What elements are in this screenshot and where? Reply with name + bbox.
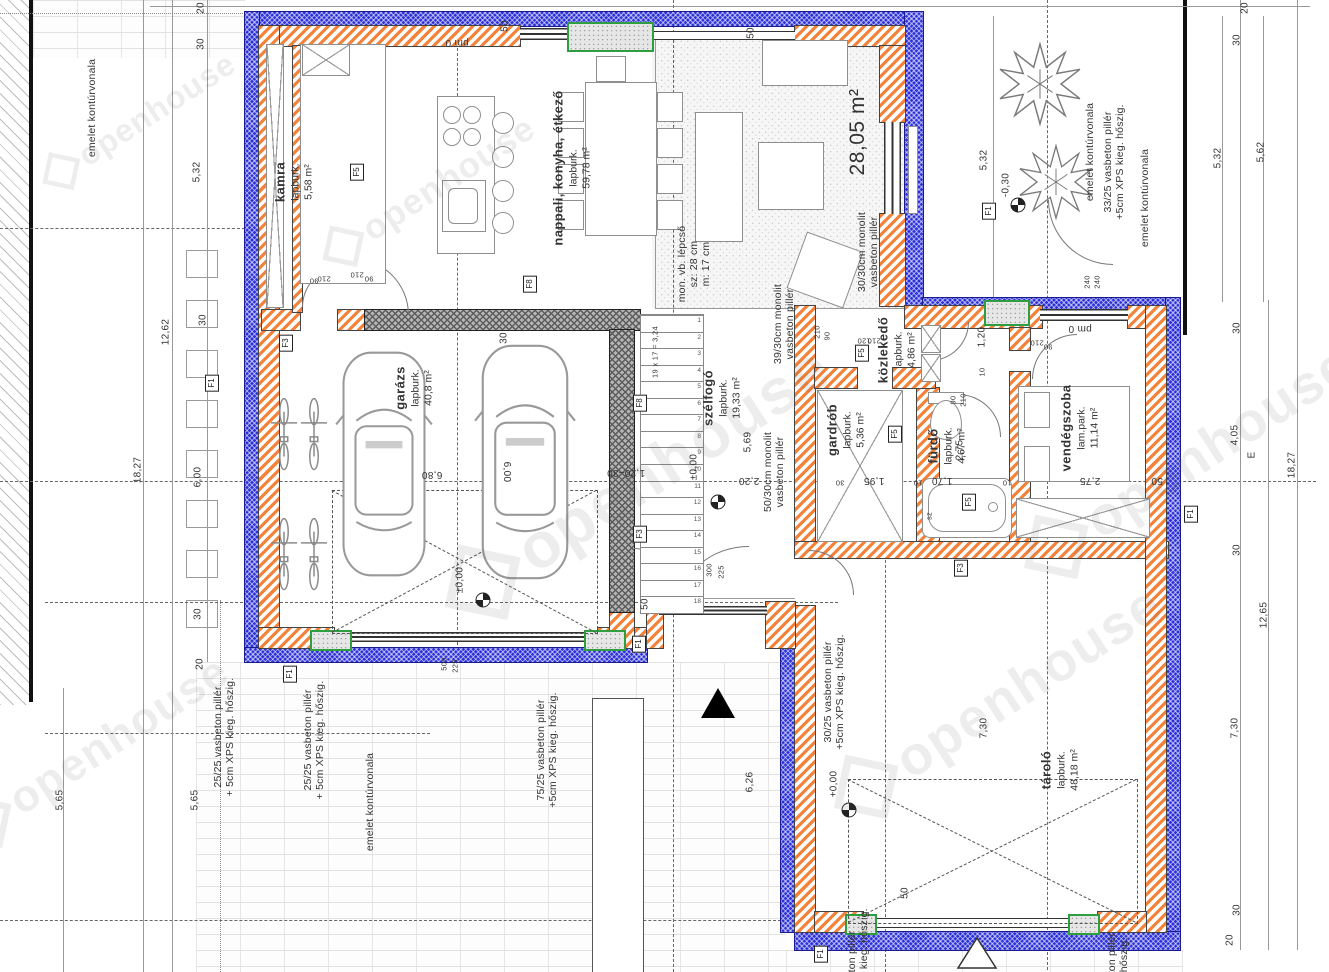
annotation-line: emelet kontúrvonala	[1139, 149, 1151, 247]
dimension-label: 90	[824, 332, 833, 341]
dining-chair	[657, 164, 683, 194]
stair-tread: 9	[641, 447, 703, 448]
dotted-line	[0, 13, 245, 14]
annotation: 25/25 vasbeton pillér+ 5cm XPS kieg. hős…	[212, 678, 236, 797]
annotation: 50/30cm monolitvasbeton pillér	[762, 432, 786, 512]
stair-tread: 13	[641, 514, 703, 515]
annotation: vasbeton pillér+5cm XPS kieg. hőszig.	[846, 908, 870, 972]
room-name: tároló	[1039, 751, 1054, 790]
insulation-band	[245, 12, 259, 662]
dimension-label: 20	[1224, 934, 1236, 946]
window	[520, 28, 568, 40]
sofa	[695, 112, 743, 242]
opening-ref-F1: F1	[1184, 505, 1198, 522]
window	[1040, 309, 1128, 321]
annotation-line: 25/25 vasbeton pillér	[302, 689, 314, 790]
dimension-label: 7,30	[978, 718, 990, 739]
pillar-pad	[567, 22, 654, 52]
annotation: emelet kontúrvonala	[364, 753, 376, 851]
dimension-label: 240	[1094, 275, 1103, 288]
neighbor-hatch-strip	[0, 0, 29, 705]
opening-ref-F1: F1	[982, 202, 996, 219]
opening-ref-F5: F5	[855, 344, 869, 361]
dimension-label: 4,05	[1229, 425, 1241, 446]
dimension-label: 5,62	[1255, 142, 1267, 163]
annotation-line: emelet kontúrvonala	[1084, 103, 1096, 201]
dimension-label: 6,00	[192, 467, 204, 488]
dimension-label: ±0,00	[688, 454, 700, 480]
dimension-label: 10	[1003, 478, 1012, 487]
room-area: 4,86 m²	[905, 332, 917, 368]
annotation-line: + 5cm XPS kieg. hőszig.	[314, 681, 326, 800]
dimension-label: 30	[195, 38, 207, 50]
pillow	[1024, 446, 1050, 482]
window-band	[650, 31, 795, 40]
room-name: szélfogó	[701, 370, 716, 426]
boundary-line-left	[29, 0, 33, 702]
dimension-label: 19 x 17 = 3,24	[652, 326, 661, 378]
stair-tread: 12	[641, 497, 703, 498]
opening-ref-F5: F5	[962, 493, 976, 510]
paving-top-left	[33, 0, 245, 58]
drain	[988, 502, 998, 512]
watermark-logo-icon	[42, 152, 80, 190]
room-area: 59,78 m²	[580, 147, 592, 188]
room-finish: lam.park.	[1075, 406, 1087, 449]
car	[477, 328, 573, 596]
bar-stool	[492, 146, 514, 168]
room-name: garázs	[393, 366, 408, 410]
stair-number: 1	[697, 317, 701, 324]
annotation-line: mon. vb. lépcső	[676, 226, 688, 303]
annotation: emelet kontúrvonala	[1084, 103, 1096, 201]
stair-number: 18	[694, 598, 701, 605]
dining-chair	[657, 92, 683, 122]
dimension-label: 6,26	[744, 772, 756, 793]
boundary-line-right	[1183, 0, 1187, 335]
room-label-vendégszoba: vendégszobalam.park.11,14 m²	[1059, 385, 1100, 472]
dimension-label: ±0,00	[454, 567, 466, 593]
dimension-label: 12,65	[1258, 602, 1270, 629]
fence-post	[186, 250, 218, 278]
dimension-label: 1,20–30	[607, 466, 645, 478]
paving-driveway	[196, 662, 786, 972]
annotation: vasbeton pillérkieg. hőszig.	[1106, 933, 1130, 972]
annotation-line: 39/30cm monolit	[772, 284, 784, 364]
stair-tread: 16	[641, 563, 703, 564]
opening-ref-F1: F1	[632, 635, 646, 652]
watermark: openhouse	[38, 45, 242, 196]
room-name: nappali, konyha, étkező	[551, 90, 566, 245]
dimension-label: 50	[745, 27, 757, 39]
walkway	[592, 698, 644, 972]
room-label-szélfogó: szélfogólapburk.19,33 m²	[701, 370, 742, 426]
stair-tread: 5	[641, 381, 703, 382]
room-finish: lapburk.	[841, 411, 853, 448]
dim-line	[63, 688, 64, 972]
terrace-door	[884, 122, 901, 214]
room-area: 5,36 m²	[854, 412, 866, 448]
insulation-band	[1166, 298, 1180, 950]
room-area: 28,05 m²	[846, 89, 870, 176]
annotation-line: 30/30cm monolit	[856, 212, 868, 292]
level-marker	[476, 593, 491, 608]
dimension-label: 20	[194, 658, 206, 670]
dining-table	[585, 82, 657, 236]
annotation-line: +5cm XPS kieg. hőszig.	[1114, 104, 1126, 220]
annotation: 33/25 vasbeton pillér+5cm XPS kieg. hősz…	[1102, 104, 1126, 220]
stair-number: 13	[694, 516, 701, 523]
annotation-line: 30/25 vasbeton pillér	[822, 641, 834, 742]
dimension-label: 10	[979, 368, 988, 377]
dimension-label: 500	[441, 657, 450, 670]
dim-line	[1240, 0, 1241, 950]
dimension-label: 210	[867, 336, 880, 345]
wall-segment	[259, 26, 520, 46]
bicycle	[300, 516, 328, 594]
annotation-line: 50/30cm monolit	[762, 432, 774, 512]
dimension-label: 50	[639, 598, 651, 610]
opening-ref-F8: F8	[523, 275, 537, 292]
opening-ref-F3: F3	[633, 525, 647, 542]
annotation-line: sz: 28 cm	[688, 241, 700, 288]
stair-number: 3	[697, 350, 701, 357]
dimension-label: 30	[1231, 34, 1243, 46]
dimension-label: 1,20	[976, 327, 988, 348]
dim-line	[143, 0, 144, 972]
room-label-garázs: garázslapburk.40,8 m²	[393, 366, 434, 410]
dimension-label: 210	[814, 325, 823, 338]
annotation-line: 25/25 vasbeton pillér	[212, 686, 224, 787]
pillar-pad	[984, 300, 1030, 326]
annotation-line: m: 17 cm	[700, 242, 712, 287]
dimension-label: 210	[1030, 338, 1043, 347]
room-area: 48,18 m²	[1068, 749, 1080, 790]
dining-chair	[596, 56, 626, 82]
dimension-label: 50	[499, 20, 511, 32]
room-finish: lapburk.	[892, 331, 904, 368]
fence-post	[186, 400, 218, 428]
wall-segment	[880, 214, 905, 306]
washer	[921, 325, 941, 353]
annotation-line: emelet kontúrvonala	[364, 753, 376, 851]
annotation-line: vasbeton pillér	[868, 217, 880, 288]
room-name: kamra	[273, 162, 288, 202]
dimension-label: 6,80	[422, 468, 443, 480]
dim-line	[150, 6, 1310, 7]
stair-number: 17	[694, 582, 701, 589]
watermark-logo-icon	[0, 795, 11, 848]
stair-tread: 11	[641, 481, 703, 482]
dimension-label: 30	[498, 332, 510, 344]
fence-post	[186, 500, 218, 528]
room-label-kamra: kamralapburk.5,58 m²	[273, 162, 314, 202]
room-finish: lapburk.	[289, 163, 301, 200]
dimension-label: pm 0	[1068, 322, 1091, 334]
room-label-közlekedő: közlekedőlapburk.4,86 m²	[876, 317, 917, 383]
opening-ref-F1: F1	[814, 945, 828, 962]
wall-segment	[880, 46, 905, 122]
stair-tread: 15	[641, 547, 703, 548]
stair-number: 15	[694, 549, 701, 556]
dim-line	[172, 0, 173, 972]
annotation: 30/25 vasbeton pillér+5cm XPS kieg. hősz…	[822, 634, 846, 750]
dimension-label: 5,32	[1212, 148, 1224, 169]
annotation: emelet kontúrvonala	[86, 59, 98, 157]
annotation: 75/25 vasbeton pillér+5cm XPS kieg. hősz…	[535, 692, 559, 808]
bicycle	[300, 396, 328, 474]
dimension-label: 12,62	[160, 319, 172, 346]
contour-line	[45, 733, 430, 734]
dimension-label: 240	[1084, 275, 1093, 288]
room-area: 5,58 m²	[302, 164, 314, 200]
dimension-label: sz	[926, 512, 935, 520]
contour-line	[0, 920, 786, 921]
dimension-label: 30	[197, 314, 209, 326]
cooktop-burner	[463, 106, 481, 124]
dimension-label: 30	[1231, 544, 1243, 556]
wall-segment	[795, 306, 815, 558]
pillow	[1024, 392, 1050, 428]
dim-line	[207, 0, 208, 662]
annotation-line: vasbeton pillér	[774, 437, 786, 508]
room-finish: lapburk.	[717, 379, 729, 416]
annotation-line: emelet kontúrvonala	[86, 59, 98, 157]
room-name: közlekedő	[876, 317, 891, 383]
dimension-label: 225	[452, 659, 461, 672]
room-finish: lapburk.	[409, 369, 421, 406]
cooktop-burner	[443, 128, 461, 146]
dimension-label: 5,32	[978, 150, 990, 171]
dimension-label: 1,70	[932, 474, 953, 486]
room-area: 19,33 m²	[730, 377, 742, 418]
floor-plan-canvas: 123456789101112131415161718 kamralapburk…	[0, 0, 1329, 972]
dimension-label: 50	[899, 887, 911, 899]
dimension-label: 5,69	[742, 432, 754, 453]
cooktop-burner	[463, 128, 481, 146]
dimension-label: +0,00	[828, 771, 840, 798]
dimension-label: 10	[914, 478, 923, 487]
annotation-line: 33/25 vasbeton pillér	[1102, 111, 1114, 212]
bar-stool	[492, 180, 514, 202]
dimension-label: 300	[706, 563, 715, 576]
dimension-label: 30	[1231, 322, 1243, 334]
room-name: vendégszoba	[1059, 385, 1074, 472]
annotation-line: 75/25 vasbeton pillér	[535, 699, 547, 800]
dimension-label: 30	[1231, 904, 1243, 916]
room-label-terasz: 28,05 m²	[846, 89, 870, 176]
dimension-label: 20	[1239, 2, 1251, 14]
room-label-tároló: tárolólapburk.48,18 m²	[1039, 749, 1080, 790]
dimension-label: 50	[1151, 474, 1163, 486]
insulation-band	[781, 606, 795, 932]
stair-tread: 1	[641, 315, 703, 316]
annotation-line: + 5cm XPS kieg. hőszig.	[224, 678, 236, 797]
dimension-label: 210	[350, 270, 363, 279]
wall-segment	[795, 606, 815, 932]
dining-chair	[657, 128, 683, 158]
annotation: 25/25 vasbeton pillér+ 5cm XPS kieg. hős…	[302, 681, 326, 800]
room-name: gardrób	[825, 404, 840, 456]
stair-number: 8	[697, 433, 701, 440]
cooktop-burner	[443, 106, 461, 124]
wall-segment	[262, 310, 300, 330]
wall-segment	[815, 368, 857, 388]
level-marker	[1011, 198, 1026, 213]
annotation: 30/30cm monolitvasbeton pillér	[856, 212, 880, 292]
room-area: 11,14 m²	[1088, 408, 1100, 449]
dimension-label: 2,75	[1080, 474, 1101, 486]
dimension-label: 2,20	[739, 474, 760, 486]
room-label-nappali, konyha, étkező: nappali, konyha, étkezőlapburk.59,78 m²	[551, 90, 592, 245]
bar-stool	[492, 212, 514, 234]
annotation-line: vasbeton pillér	[784, 289, 796, 360]
stair-tread: 7	[641, 414, 703, 415]
opening-ref-F8: F8	[633, 394, 647, 411]
opening-ref-F1: F1	[283, 665, 297, 682]
annotation-line: vasbeton pillér	[846, 931, 858, 972]
room-finish: lapburk.	[567, 149, 579, 186]
dimension-label: 5,32	[191, 162, 203, 183]
level-marker	[711, 495, 726, 510]
dimension-label: 2,75	[954, 440, 966, 461]
room-finish: lapburk.	[1055, 751, 1067, 788]
dimension-label: 90	[1044, 342, 1053, 351]
stair-tread: 8	[641, 431, 703, 432]
room-label-gardrób: gardróblapburk.5,36 m²	[825, 404, 866, 456]
dimension-label: 90	[365, 274, 374, 283]
stair-number: 16	[694, 565, 701, 572]
dimension-label: 18,27	[1286, 452, 1298, 479]
bicycle	[270, 396, 298, 474]
fence-post	[186, 550, 218, 578]
dimension-label: 18,27	[132, 457, 144, 484]
dimension-label: 225	[718, 565, 727, 578]
annotation-line: +5cm XPS kieg. hőszig.	[858, 908, 870, 972]
bar-stool	[492, 112, 514, 134]
opening-ref-F3: F3	[279, 334, 293, 351]
wall-segment	[1010, 328, 1030, 350]
room-finish: lapburk.	[942, 427, 954, 464]
wardrobe	[1016, 498, 1150, 538]
entrance-arrow	[701, 688, 735, 718]
dimension-label: 6,00	[500, 462, 512, 483]
dimension-label: 20	[195, 2, 207, 14]
dryer	[921, 354, 941, 382]
bicycle	[270, 516, 298, 594]
opening-ref-F1: F1	[205, 374, 219, 391]
dimension-label: 90	[950, 396, 959, 405]
dimension-label: -0,30	[1000, 173, 1012, 197]
fridge	[302, 44, 350, 76]
annotation: 39/30cm monolitvasbeton pillér	[772, 284, 796, 364]
stair-tread: 14	[641, 530, 703, 531]
tree	[998, 42, 1082, 126]
wall-segment	[766, 602, 795, 648]
annotation: mon. vb. lépcsősz: 28 cmm: 17 cm	[676, 226, 712, 303]
sofa	[762, 40, 848, 86]
watermark-text: openhouse	[883, 572, 1173, 791]
dimension-label: 210	[960, 393, 969, 406]
dim-line	[993, 16, 994, 302]
stair-number: 2	[697, 334, 701, 341]
dimension-label: 30	[836, 478, 845, 487]
stair-number: 12	[694, 499, 701, 506]
stair-number: 11	[694, 483, 701, 490]
annotation: emelet kontúrvonala	[1139, 149, 1151, 247]
level-marker	[842, 803, 857, 818]
tv-console	[908, 126, 918, 214]
annotation-line: +5cm XPS kieg. hőszig.	[834, 634, 846, 750]
contour-line	[0, 228, 245, 229]
sink-basin	[448, 188, 478, 224]
coffee-table	[758, 142, 824, 210]
opening-ref-F3: F3	[954, 559, 968, 576]
dimension-label: 1,95	[864, 474, 885, 486]
wall-segment	[1146, 306, 1166, 932]
section-marker	[956, 936, 998, 970]
dimension-label: pm 0	[445, 36, 468, 48]
dimension-label: 7,30	[1229, 718, 1241, 739]
dimension-label: 210	[317, 274, 330, 283]
wall-segment	[795, 542, 1168, 558]
opening-ref-F5: F5	[350, 163, 364, 180]
dimension-label: E	[1246, 452, 1258, 459]
stair-tread: 6	[641, 398, 703, 399]
stair-number: 14	[694, 532, 701, 539]
annotation-line: +5cm XPS kieg. hőszig.	[547, 692, 559, 808]
opening-ref-F5: F5	[888, 425, 902, 442]
dimension-label: 5,65	[54, 790, 66, 811]
stair-tread: 17	[641, 580, 703, 581]
annotation-line: kieg. hőszig.	[1118, 938, 1130, 972]
room-name: fürdő	[926, 428, 941, 463]
dimension-label: 5,65	[189, 790, 201, 811]
dimension-label: 30	[192, 608, 204, 620]
annotation-line: vasbeton pillér	[1106, 933, 1118, 972]
room-area: 40,8 m²	[422, 370, 434, 406]
